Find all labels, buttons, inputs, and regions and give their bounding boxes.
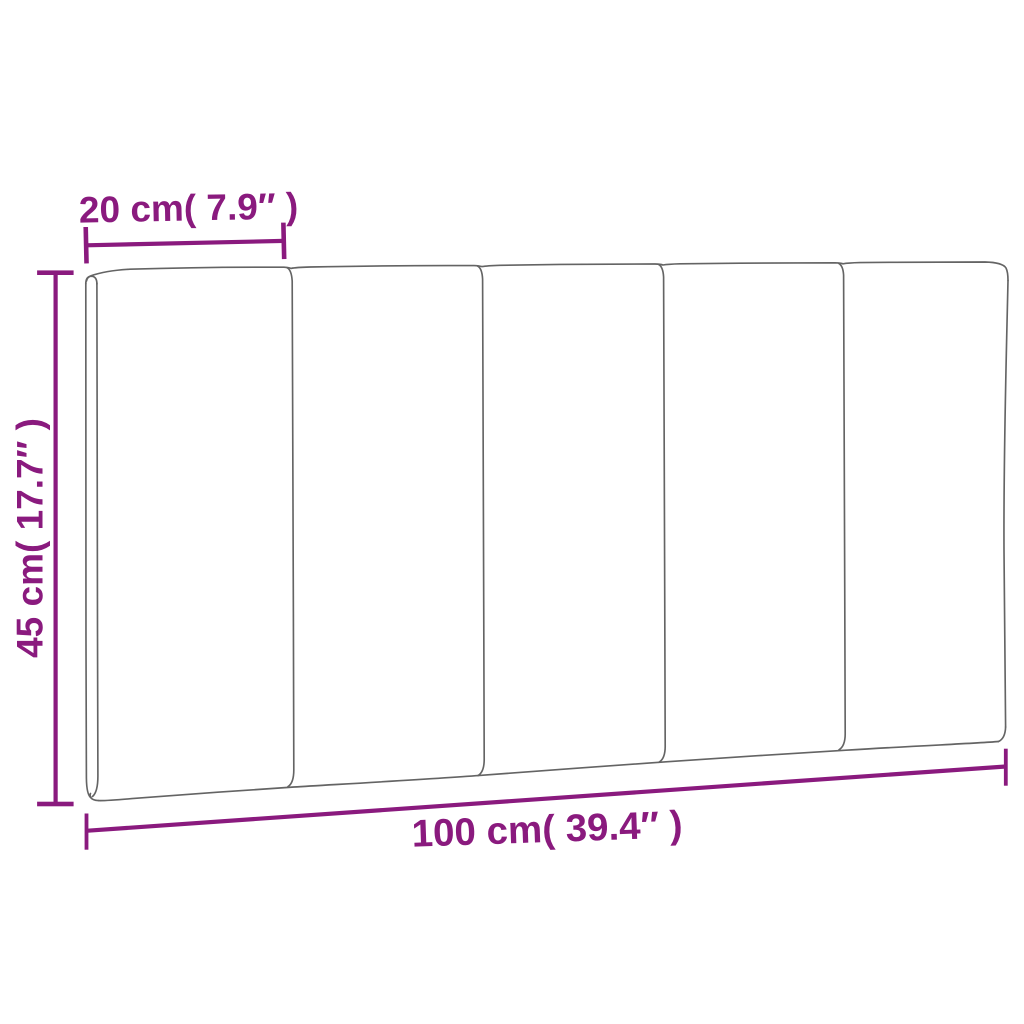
svg-text:45 cm( 17.7″ ): 45 cm( 17.7″ ) — [10, 418, 51, 658]
svg-text:20 cm( 7.9″ ): 20 cm( 7.9″ ) — [79, 185, 299, 230]
